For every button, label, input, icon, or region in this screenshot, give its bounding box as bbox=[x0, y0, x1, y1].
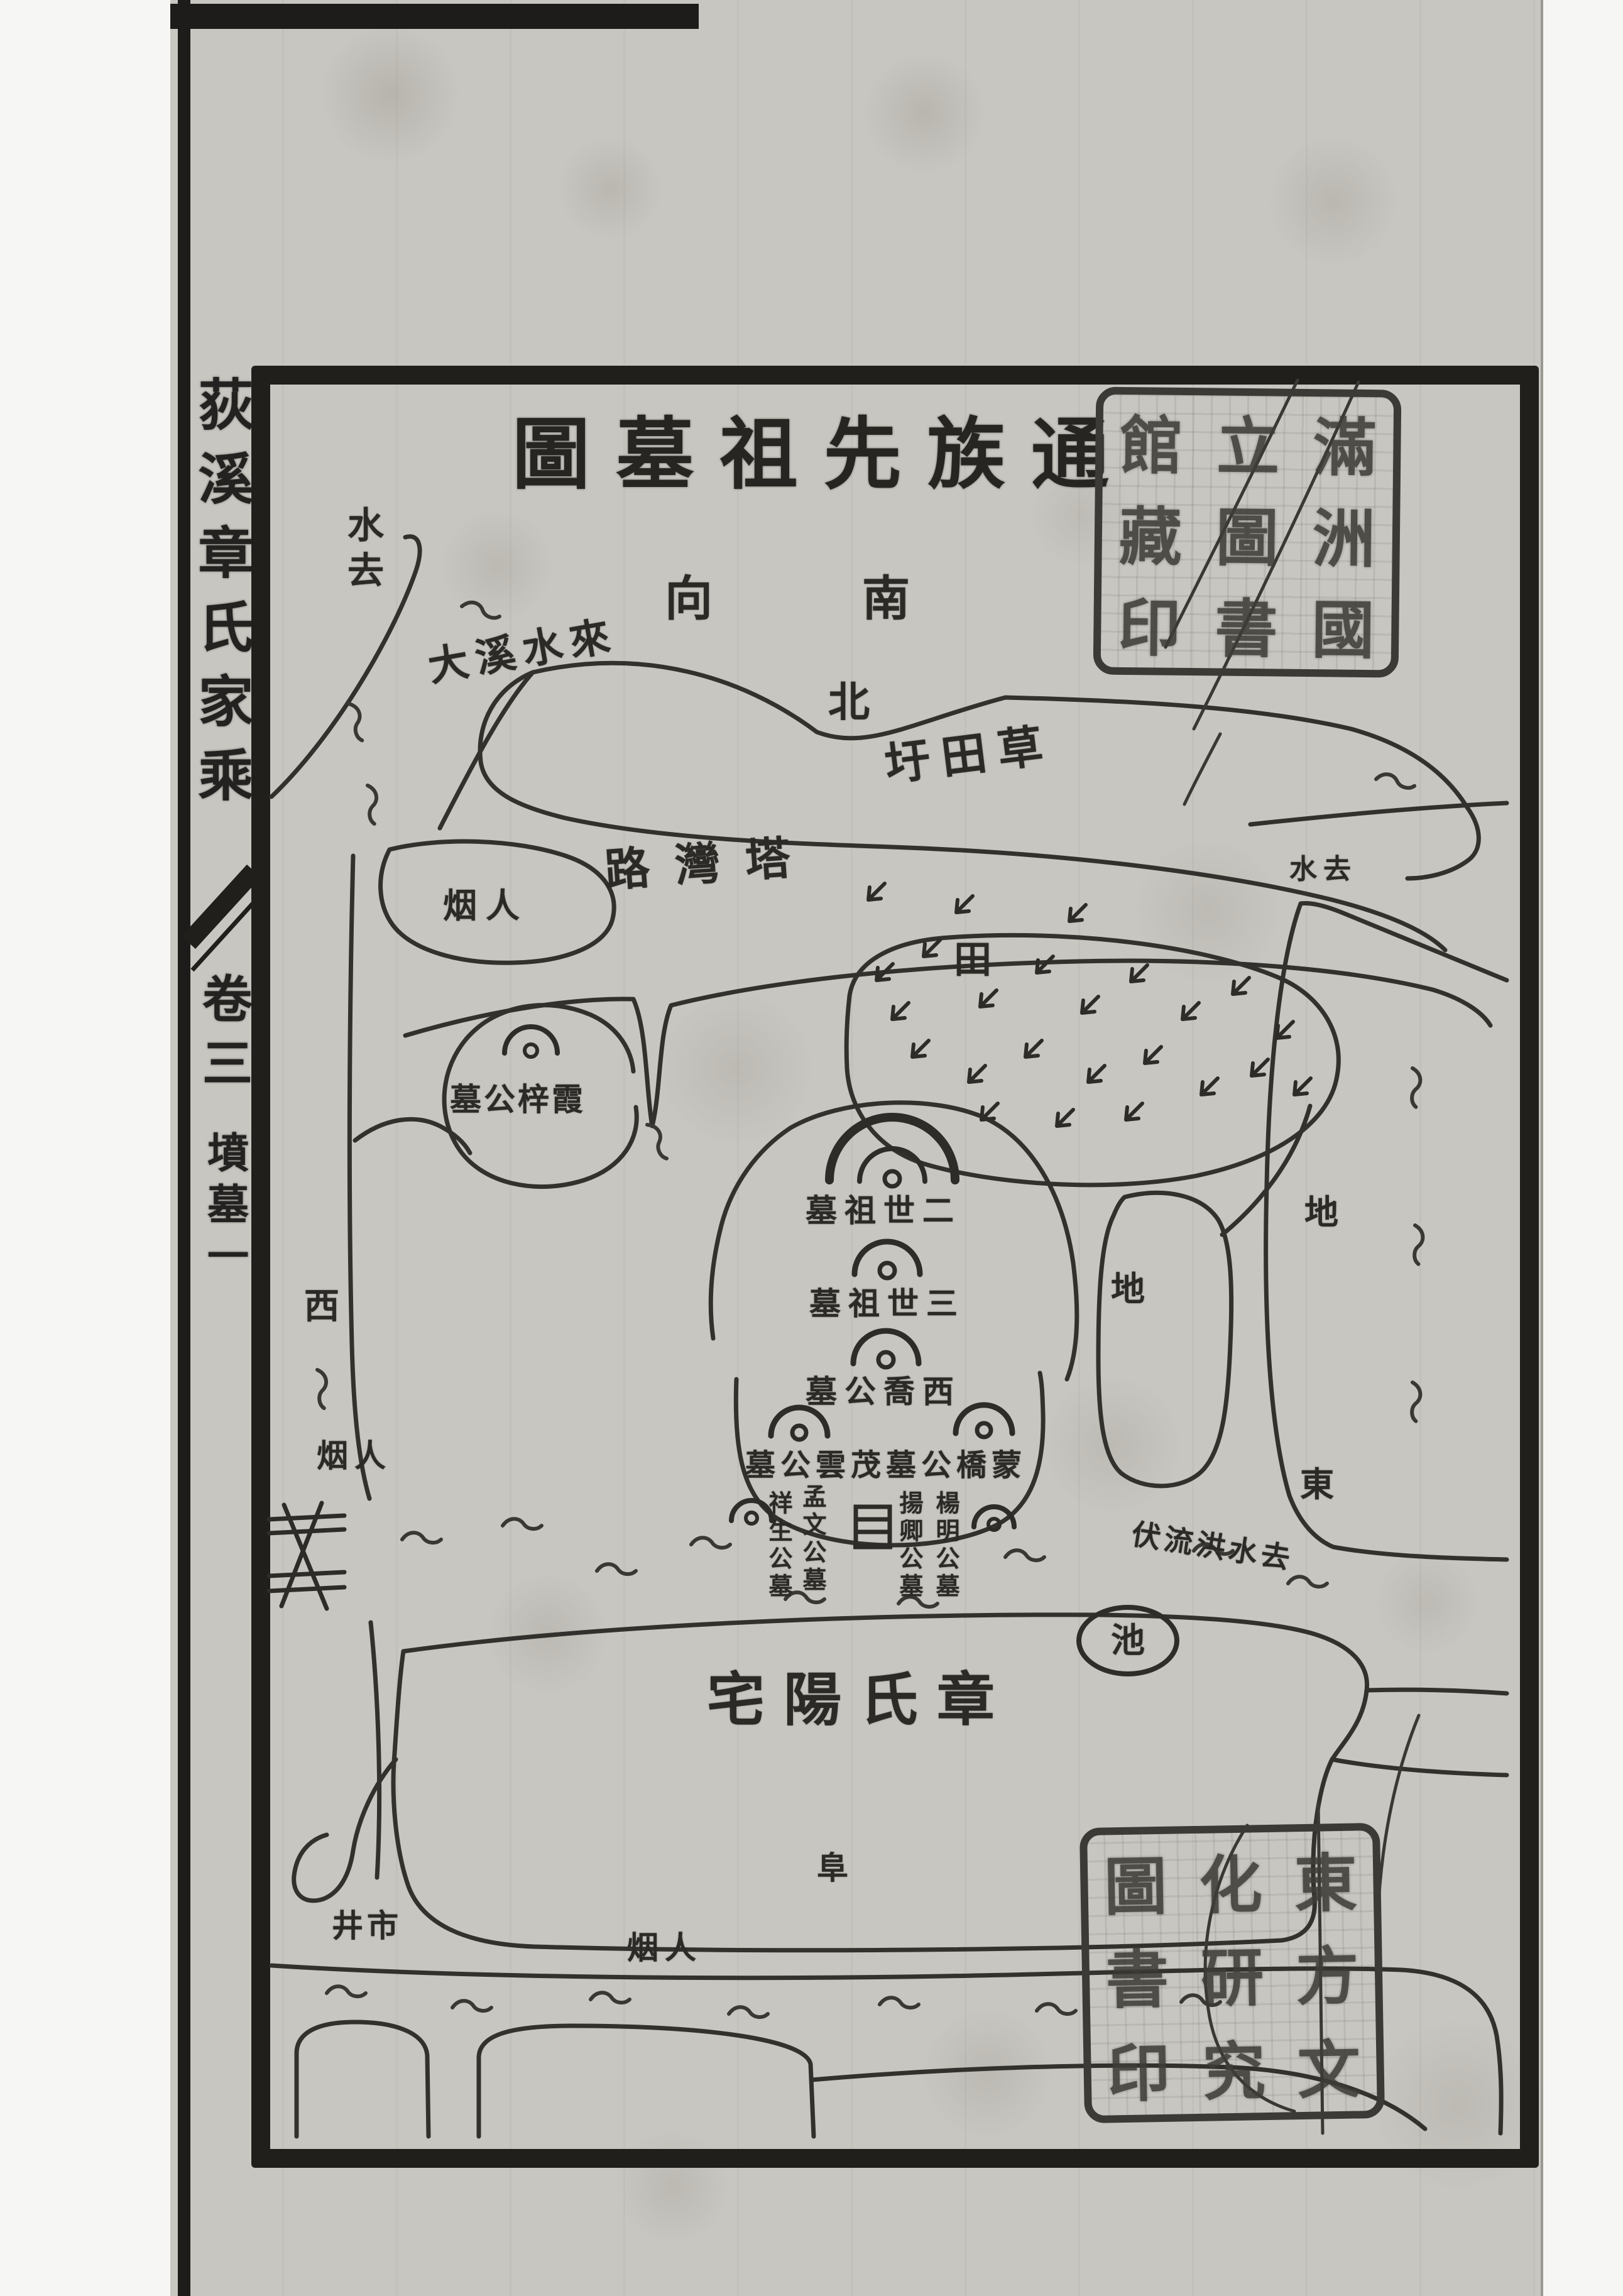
field-sprout-marks bbox=[868, 883, 1311, 1126]
tomb-label-yangming: 楊明公墓 bbox=[934, 1490, 958, 1601]
seal-character: 方 bbox=[1279, 1924, 1375, 2019]
tomb-label-mengwen: 孟文公墓 bbox=[801, 1484, 824, 1595]
orientation-south: 南 bbox=[862, 575, 910, 623]
label-road: 路灣塔 bbox=[603, 833, 817, 893]
label-east: 東 bbox=[1300, 1468, 1334, 1502]
title-char: 圖 bbox=[512, 391, 590, 504]
label-market: 井市 bbox=[332, 1910, 402, 1942]
seal-character: 藏 bbox=[1101, 486, 1199, 578]
tomb-label-gen3: 墓祖世三 bbox=[809, 1288, 965, 1320]
label-west: 西 bbox=[304, 1289, 339, 1325]
seal-character: 文 bbox=[1281, 2017, 1377, 2112]
title-char: 族 bbox=[927, 391, 1005, 504]
seal-character: 印 bbox=[1090, 2021, 1187, 2116]
seal-character: 圖 bbox=[1198, 486, 1296, 579]
seal-character: 洲 bbox=[1295, 488, 1393, 580]
altar-box-symbol bbox=[853, 1507, 892, 1547]
seal-character: 書 bbox=[1198, 577, 1296, 670]
tomb-symbol-maoyun bbox=[771, 1408, 828, 1440]
label-settlement-1: 烟人 bbox=[443, 889, 528, 923]
seal-character: 書 bbox=[1089, 1927, 1186, 2022]
spine-volume: 卷三 bbox=[198, 973, 248, 1101]
map-title: 圖 墓 祖 先 族 通 bbox=[512, 391, 1109, 504]
seal-character: 東 bbox=[1277, 1830, 1374, 1925]
spine-title: 荻溪章氏家乘 bbox=[194, 376, 249, 821]
label-settlement-3: 烟人 bbox=[627, 1932, 702, 1964]
label-water-out-left: 水去 bbox=[344, 506, 381, 596]
spine-section: 墳墓一 bbox=[204, 1131, 245, 1286]
seal-character: 印 bbox=[1101, 577, 1199, 669]
label-residence: 宅陽氏章 bbox=[707, 1671, 1014, 1729]
seal-character: 立 bbox=[1199, 395, 1298, 488]
tomb-label-xiazi: 墓公梓霞 bbox=[450, 1084, 586, 1115]
seal-character: 滿 bbox=[1296, 396, 1394, 489]
title-char: 先 bbox=[824, 391, 902, 504]
tomb-label-mengqiao: 墓公橋蒙 bbox=[886, 1450, 1027, 1480]
tomb-label-yangqing: 揚卿公墓 bbox=[897, 1490, 921, 1601]
library-seal-bottom: 東 方 文 化 研 究 圖 書 印 bbox=[1079, 1823, 1385, 2123]
tomb-symbol-mengqiao bbox=[956, 1405, 1012, 1437]
title-char: 祖 bbox=[719, 391, 797, 504]
tomb-label-maoyun: 墓公雲茂 bbox=[745, 1450, 886, 1480]
spine-divider bbox=[189, 871, 254, 970]
seal-character: 國 bbox=[1294, 579, 1392, 671]
title-char: 墓 bbox=[616, 391, 694, 504]
tomb-label-xiqiao: 墓公喬西 bbox=[806, 1376, 961, 1408]
label-field: 田 bbox=[954, 941, 992, 979]
tomb-symbol-gen3 bbox=[855, 1242, 920, 1278]
library-seal-top: 滿 洲 國 立 圖 書 館 藏 印 bbox=[1093, 386, 1402, 677]
tomb-label-xiangsheng: 祥生公墓 bbox=[767, 1490, 790, 1601]
seal-character: 研 bbox=[1184, 1925, 1281, 2020]
orientation-north: 北 bbox=[828, 682, 870, 723]
label-land-right: 地 bbox=[1304, 1196, 1338, 1230]
tomb-label-gen2: 墓祖世二 bbox=[806, 1195, 961, 1227]
tomb-symbol-gen2 bbox=[829, 1117, 955, 1186]
tomb-symbol-xiqiao bbox=[853, 1331, 919, 1367]
seal-character: 究 bbox=[1186, 2019, 1282, 2114]
label-settlement-2: 烟人 bbox=[317, 1440, 392, 1472]
pond-outline: 池 bbox=[1076, 1605, 1179, 1676]
bridge-symbol bbox=[269, 1503, 344, 1609]
tomb-symbol-xiazi bbox=[505, 1027, 557, 1057]
seal-character: 圖 bbox=[1087, 1834, 1184, 1928]
label-pond: 池 bbox=[1111, 1624, 1145, 1658]
orientation-facing: 向 bbox=[665, 575, 713, 623]
seal-character: 館 bbox=[1103, 395, 1201, 487]
seal-character: 化 bbox=[1182, 1832, 1279, 1927]
label-water-out-right: 水去 bbox=[1289, 856, 1357, 883]
label-mound: 阜 bbox=[817, 1852, 848, 1884]
label-land-center: 地 bbox=[1111, 1272, 1145, 1306]
